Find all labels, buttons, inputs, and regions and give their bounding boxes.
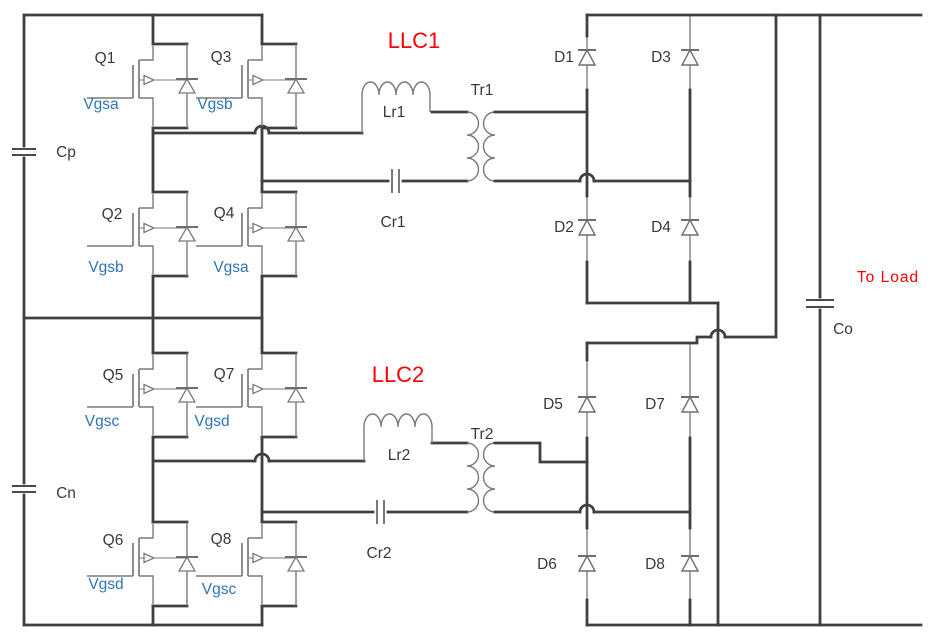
cp-label: Cp [56,144,76,161]
q4-label: Q4 [214,205,235,222]
d3-label: D3 [651,49,671,66]
cn-label: Cn [56,485,76,502]
to-load-label: To Load [857,269,919,286]
tr2-secondary-winding [484,443,496,512]
q7-gate-label: Vgsd [194,413,229,430]
capacitor-co [806,300,834,307]
inductor-lr1-symbol [362,82,430,95]
circuit-diagram-page: Q1 Q2 Q3 Q4 Q5 Q6 Q7 Q8 Vgsa Vgsb Vgsb V… [0,0,936,635]
cr2-label: Cr2 [367,545,392,562]
cr1-label: Cr1 [381,214,406,231]
d7-label: D7 [645,396,665,413]
capacitor-cp [12,149,36,155]
inductor-lr2-symbol [364,414,432,427]
tr1-primary-winding [467,112,479,181]
d5-label: D5 [543,396,563,413]
q6-gate-label: Vgsd [88,576,123,593]
diode-d2-symbol [578,220,596,235]
d6-label: D6 [537,556,557,573]
diode-d8-symbol [681,556,699,571]
diode-d5-symbol [578,397,596,412]
llc1-section-label: LLC1 [388,28,441,53]
d1-label: D1 [554,49,574,66]
tr2-secondary-top-wire [495,443,587,462]
rectifier2-positive-rail [587,337,776,343]
q8-label: Q8 [211,531,232,548]
tr1-secondary-winding [484,112,496,181]
rectifier-leg-thick-segments [587,15,690,625]
diode-d3-symbol [681,50,699,65]
secondary-side-wires [495,15,921,625]
capacitor-cr2-plates [377,500,384,524]
q3-gate-label: Vgsb [197,96,232,113]
labels: Q1 Q2 Q3 Q4 Q5 Q6 Q7 Q8 Vgsa Vgsb Vgsb V… [56,28,919,598]
q1-label: Q1 [95,50,116,67]
capacitor-cn [12,486,36,492]
q2-gate-label: Vgsb [88,259,123,276]
diode-d6-symbol [578,556,596,571]
diode-d1-symbol [578,50,596,65]
q1-gate-label: Vgsa [83,96,119,113]
d2-label: D2 [554,219,574,236]
q6-label: Q6 [103,532,124,549]
co-label: Co [833,321,853,338]
diode-d4-symbol [681,220,699,235]
d8-label: D8 [645,556,665,573]
q5-gate-label: Vgsc [85,413,120,430]
lr2-label: Lr2 [388,447,410,464]
dual-llc-converter-schematic: Q1 Q2 Q3 Q4 Q5 Q6 Q7 Q8 Vgsa Vgsb Vgsb V… [0,0,936,635]
lr1-label: Lr1 [383,104,405,121]
capacitor-cr1-plates [392,169,399,193]
tr2-primary-winding [467,443,479,512]
d4-label: D4 [651,219,671,236]
q4-gate-label: Vgsa [213,259,249,276]
q8-gate-label: Vgsc [202,581,237,598]
llc2-section-label: LLC2 [372,362,425,387]
q3-label: Q3 [211,49,232,66]
q7-label: Q7 [214,366,235,383]
q5-label: Q5 [103,367,124,384]
q2-label: Q2 [102,206,123,223]
diode-d7-symbol [681,397,699,412]
tr1-label: Tr1 [471,82,494,99]
tr2-label: Tr2 [471,426,494,443]
